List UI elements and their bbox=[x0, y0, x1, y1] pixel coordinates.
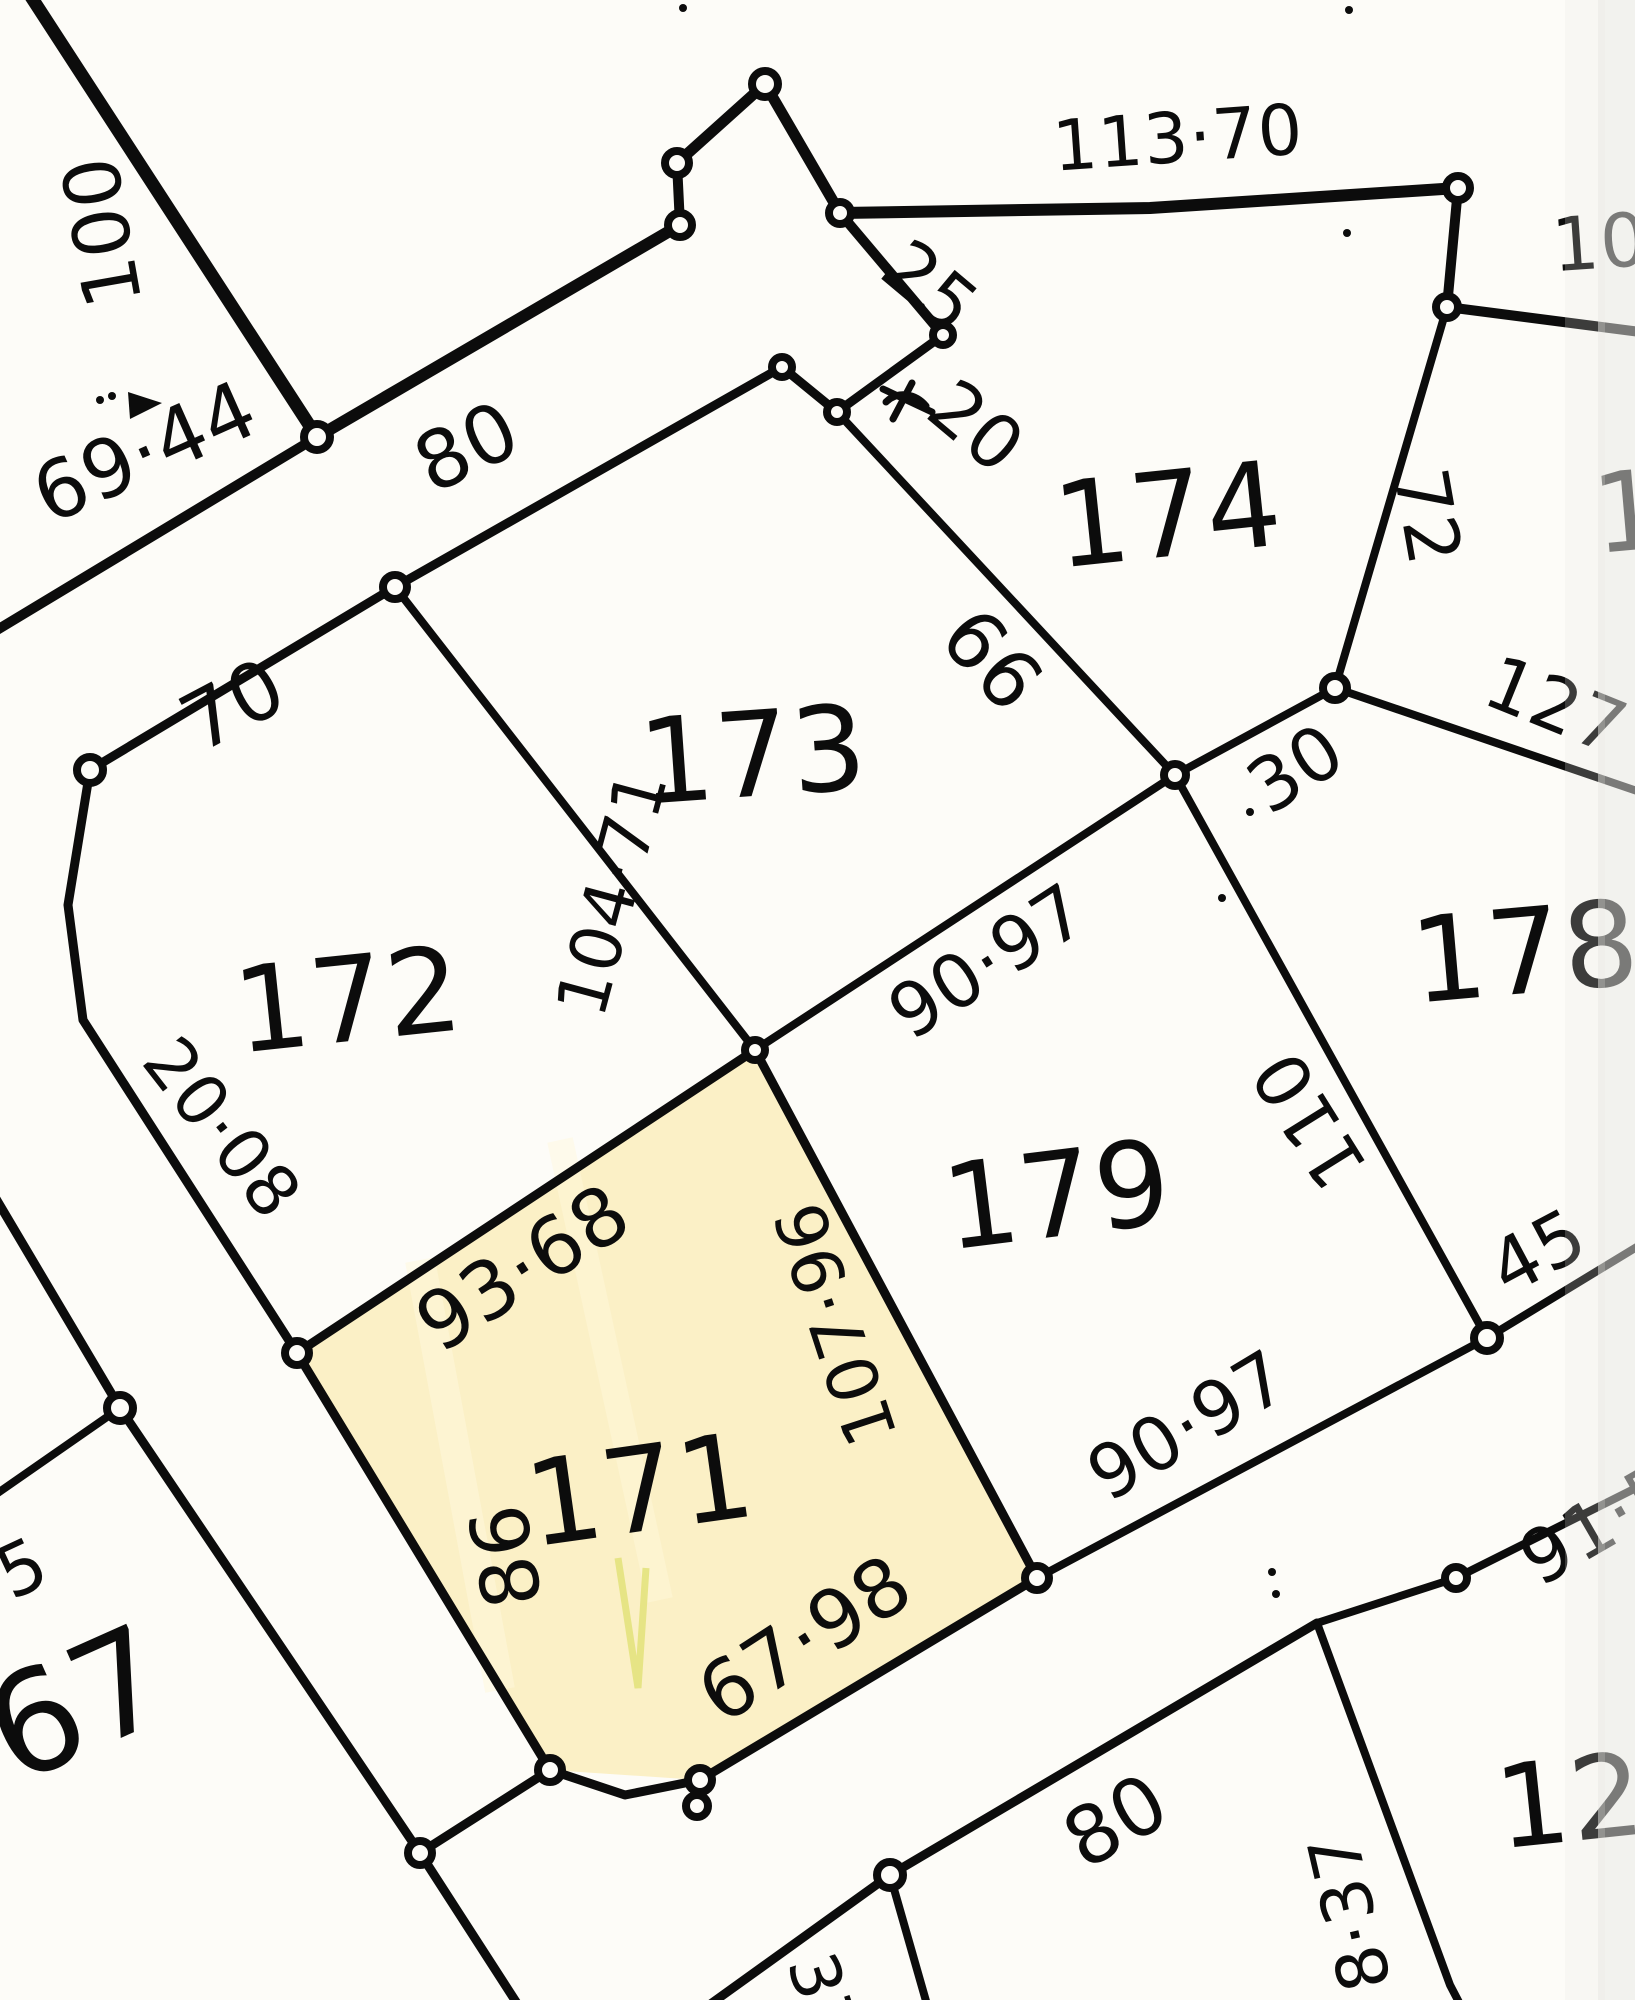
ink-dot bbox=[1343, 229, 1351, 237]
survey-point bbox=[1436, 296, 1458, 318]
survey-point bbox=[772, 357, 792, 377]
survey-point bbox=[1474, 1325, 1500, 1351]
ink-dot bbox=[1218, 894, 1226, 902]
ink-dot bbox=[108, 392, 116, 400]
survey-point bbox=[285, 1341, 309, 1365]
survey-point bbox=[668, 213, 692, 237]
survey-point bbox=[383, 575, 407, 599]
survey-point bbox=[752, 71, 778, 97]
ink-dot bbox=[679, 4, 687, 12]
lot-number-174: 174 bbox=[1047, 434, 1288, 595]
survey-point bbox=[686, 1795, 708, 1817]
scan-shade bbox=[1598, 0, 1635, 2000]
ink-dot bbox=[1345, 6, 1353, 14]
survey-point bbox=[1025, 1566, 1049, 1590]
survey-point bbox=[1164, 764, 1186, 786]
survey-point bbox=[877, 1862, 903, 1888]
survey-point bbox=[1446, 176, 1470, 200]
survey-point bbox=[408, 1841, 432, 1865]
survey-point bbox=[107, 1395, 133, 1421]
survey-point bbox=[688, 1768, 712, 1792]
plat-map-page: 1711721731741781796712110069·448070113·7… bbox=[0, 0, 1635, 2000]
dimension-72: 72 bbox=[1376, 462, 1477, 572]
dimension-113-70: 113·70 bbox=[1050, 88, 1306, 187]
survey-point bbox=[829, 202, 851, 224]
ink-dot bbox=[1268, 1568, 1276, 1576]
ink-dot bbox=[96, 396, 104, 404]
survey-point bbox=[827, 402, 847, 422]
survey-point bbox=[745, 1040, 765, 1060]
lot-number-172: 172 bbox=[227, 919, 468, 1080]
plat-map: 1711721731741781796712110069·448070113·7… bbox=[0, 0, 1635, 2000]
survey-point bbox=[77, 757, 103, 783]
lot-number-179: 179 bbox=[935, 1113, 1178, 1278]
survey-point bbox=[1445, 1567, 1467, 1589]
ink-dot bbox=[1272, 1590, 1280, 1598]
survey-point bbox=[665, 151, 689, 175]
survey-point bbox=[1323, 676, 1347, 700]
ink-dot bbox=[1246, 808, 1254, 816]
dimension-86: 86 bbox=[451, 1497, 561, 1615]
survey-point bbox=[538, 1758, 562, 1782]
survey-point bbox=[304, 424, 330, 450]
